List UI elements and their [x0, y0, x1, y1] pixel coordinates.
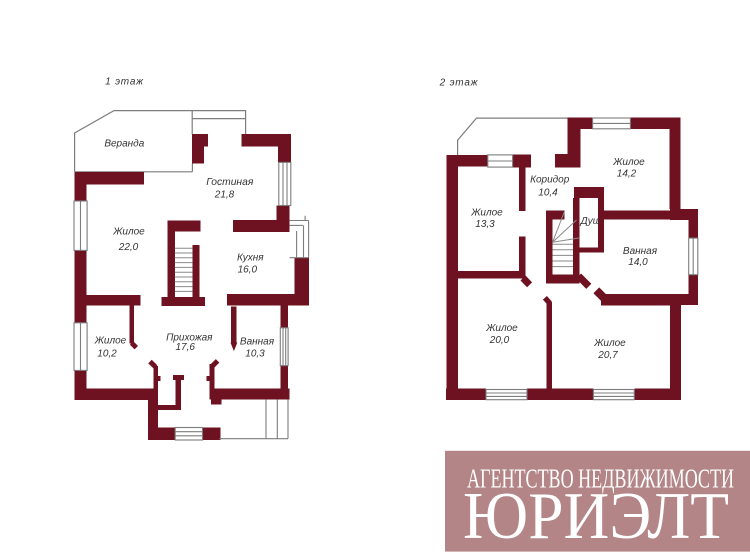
svg-text:Жилое: Жилое	[94, 335, 127, 346]
svg-text:Жилое: Жилое	[593, 338, 626, 349]
svg-text:2 этаж: 2 этаж	[439, 78, 479, 89]
svg-text:Душ: Душ	[580, 216, 602, 227]
svg-text:16,0: 16,0	[238, 264, 258, 275]
svg-text:22,0: 22,0	[118, 242, 139, 253]
svg-text:17,6: 17,6	[175, 342, 195, 353]
svg-text:ЮРИЭЛТ: ЮРИЭЛТ	[463, 479, 729, 553]
svg-text:Жилое: Жилое	[612, 157, 645, 168]
svg-text:13,3: 13,3	[475, 219, 495, 230]
svg-text:20,0: 20,0	[489, 335, 510, 346]
svg-text:Жилое: Жилое	[485, 323, 518, 334]
svg-text:10,4: 10,4	[538, 187, 558, 198]
svg-text:Коридор: Коридор	[530, 175, 570, 186]
svg-text:Гостиная: Гостиная	[206, 177, 254, 188]
svg-text:Жилое: Жилое	[470, 207, 503, 218]
svg-text:20,7: 20,7	[597, 350, 618, 361]
svg-text:14,2: 14,2	[617, 169, 637, 180]
svg-text:1 этаж: 1 этаж	[105, 77, 144, 88]
svg-text:10,2: 10,2	[97, 348, 117, 359]
svg-text:Кухня: Кухня	[237, 252, 264, 263]
svg-text:14,0: 14,0	[628, 257, 648, 268]
svg-text:Жилое: Жилое	[112, 227, 145, 238]
svg-text:21,8: 21,8	[214, 190, 235, 201]
svg-text:Веранда: Веранда	[104, 139, 144, 150]
svg-text:10,3: 10,3	[245, 349, 265, 360]
svg-text:Ванная: Ванная	[240, 337, 275, 348]
svg-text:Ванная: Ванная	[623, 246, 658, 257]
